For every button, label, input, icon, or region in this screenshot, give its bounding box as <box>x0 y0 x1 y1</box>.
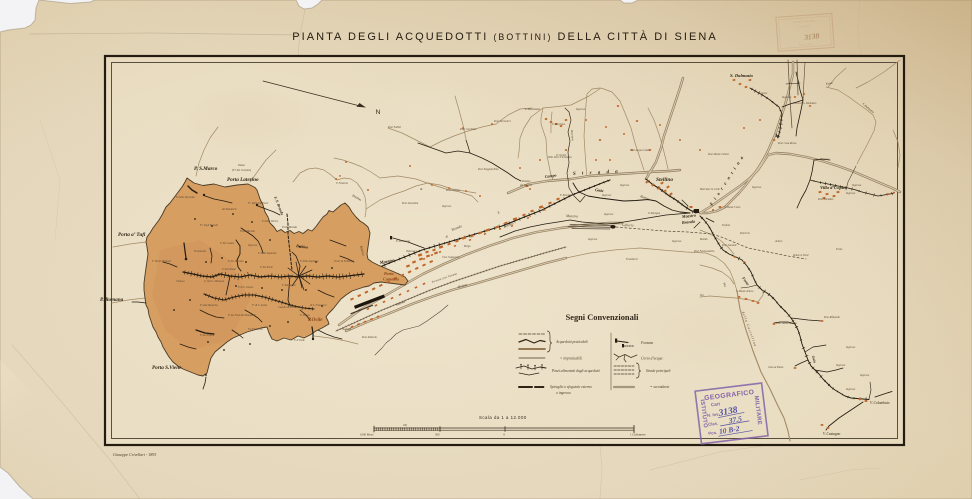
svg-text:F. della Sapienza: F. della Sapienza <box>257 252 277 255</box>
svg-text:Ingresso: Ingresso <box>247 244 258 247</box>
svg-text:Porta: Porta <box>384 271 394 276</box>
svg-text:Ingresso: Ingresso <box>603 213 614 216</box>
svg-text:F. dei Fonti del Mandorlo: F. dei Fonti del Mandorlo <box>227 314 256 317</box>
svg-text:Pod. Acqua Calda: Pod. Acqua Calda <box>629 149 650 152</box>
svg-text:Villa d’Uopini: Villa d’Uopini <box>820 185 848 190</box>
svg-text:Petriccio: Petriccio <box>739 232 751 235</box>
svg-text:G. Val G. Montone: G. Val G. Montone <box>204 280 225 283</box>
svg-text:P. S.Marco: P. S.Marco <box>194 166 218 172</box>
svg-text:Pod. Albereta: Pod. Albereta <box>361 336 377 339</box>
svg-text:Ingresso: Ingresso <box>845 388 856 391</box>
svg-text:Fonte Brenda: Fonte Brenda <box>239 230 255 233</box>
svg-text:Pod. Casa Rossa: Pod. Casa Rossa <box>777 142 797 145</box>
svg-text:Acquedotti praticabili: Acquedotti praticabili <box>555 340 588 344</box>
svg-text:Scala da 1 a 12.000: Scala da 1 a 12.000 <box>479 415 527 420</box>
svg-text:V. Castagno: V. Castagno <box>823 432 841 436</box>
svg-text:Ingresso: Ingresso <box>575 108 586 111</box>
svg-text:Curva di S. Dalmazio: Curva di S. Dalmazio <box>793 102 817 105</box>
svg-text:Spiraglio o sfogatoio esterno: Spiraglio o sfogatoio esterno <box>550 385 592 389</box>
svg-text:Fᵗᵃ delle due Porte: Fᵗᵃ delle due Porte <box>247 201 269 205</box>
svg-text:Ingresso: Ingresso <box>859 374 870 377</box>
svg-text:N: N <box>376 109 381 116</box>
svg-text:F. del Casato: F. del Casato <box>219 242 235 245</box>
svg-text:500: 500 <box>435 433 440 437</box>
svg-text:Pod. Fabbri: Pod. Fabbri <box>387 126 401 129</box>
svg-text:Pod. Cerchiaia: Pod. Cerchiaia <box>459 128 477 131</box>
svg-text:Pod. Poggiarellino: Pod. Poggiarellino <box>477 168 499 171</box>
svg-text:F. Pantaneto: F. Pantaneto <box>281 284 296 287</box>
svg-text:Corso d’acqua: Corso d’acqua <box>641 357 663 361</box>
svg-text:V. Fosteria: V. Fosteria <box>336 182 348 185</box>
svg-text:F. Nuova: F. Nuova <box>299 314 310 317</box>
svg-text:Civo Cappuccio: Civo Cappuccio <box>442 256 460 259</box>
svg-text:Ingresso: Ingresso <box>601 194 612 197</box>
svg-text:F. dell’Abate: F. dell’Abate <box>221 268 237 271</box>
svg-text:Marciano in Colle: Marciano in Colle <box>699 188 721 191</box>
svg-text:PIANTA DEGLI ACQUEDOTTI (BOTTI: PIANTA DEGLI ACQUEDOTTI (BOTTINI) DELLA … <box>292 30 718 43</box>
svg-text:Palazzo: Palazzo <box>521 180 531 183</box>
svg-text:Ingresso: Ingresso <box>819 158 830 161</box>
svg-text:Capella di Provenzano: Capella di Provenzano <box>278 306 303 309</box>
svg-text:F. Val di Montone: F. Val di Montone <box>151 260 172 263</box>
svg-text:Camollia: Camollia <box>383 277 399 282</box>
svg-text:1000 Metri: 1000 Metri <box>360 433 374 437</box>
svg-text:Ingresso: Ingresso <box>619 184 630 187</box>
svg-text:Porta Laterino: Porta Laterino <box>227 177 259 183</box>
svg-text:Ingresso: Ingresso <box>751 186 762 189</box>
svg-text:Ingresso: Ingresso <box>851 184 862 187</box>
svg-text:Fontana: Fontana <box>640 341 653 345</box>
svg-text:P.Ovile: P.Ovile <box>308 318 323 323</box>
svg-text:Diana: Diana <box>237 164 245 167</box>
svg-text:Pod. Fontecastello: Pod. Fontecastello <box>693 250 715 253</box>
svg-text:di S. Francesco: di S. Francesco <box>310 304 327 307</box>
svg-text:Borgo: Borgo <box>464 245 471 248</box>
svg-text:Maestra: Maestra <box>565 214 578 218</box>
svg-text:Fontebecci: Fontebecci <box>625 258 638 261</box>
svg-text:Pod. Rifiuardo: Pod. Rifiuardo <box>823 316 841 319</box>
svg-text:Arieno: Arieno <box>774 240 783 243</box>
svg-text:Pod. Torrenieri: Pod. Torrenieri <box>493 120 511 123</box>
svg-text:F. di Pescaia: F. di Pescaia <box>395 240 411 243</box>
svg-text:Pod. Lanzetti: Pod. Lanzetti <box>721 244 737 247</box>
svg-text:F. della Vetrice: F. della Vetrice <box>261 220 279 223</box>
svg-text:Pod. Casone: Pod. Casone <box>445 189 461 192</box>
svg-text:Ingresso: Ingresso <box>781 96 792 99</box>
svg-text:del Mandorlo: del Mandorlo <box>222 208 237 211</box>
svg-text:Chiasso: Chiasso <box>176 280 185 283</box>
svg-text:Mondo: Mondo <box>699 238 708 241</box>
svg-text:o ingresso: o ingresso <box>556 391 571 395</box>
svg-text:F. del Mercato: F. del Mercato <box>227 260 244 263</box>
svg-text:Stellino: Stellino <box>656 177 673 183</box>
svg-text:Imbocco Nord: Imbocco Nord <box>792 254 809 257</box>
svg-text:Pod. Santa Monica: Pod. Santa Monica <box>775 322 797 325</box>
svg-text:= impraticabili: = impraticabili <box>560 357 582 361</box>
svg-text:V. Colombaio: V. Colombaio <box>870 401 890 405</box>
svg-text:F. della Sapienza: F. della Sapienza <box>299 260 319 263</box>
svg-text:V. Monte Arioso: V. Monte Arioso <box>736 290 754 293</box>
svg-text:Casa al Piano: Casa al Piano <box>768 366 784 369</box>
svg-text:Ingresso: Ingresso <box>835 364 846 367</box>
svg-text:F. dei Pispini: F. dei Pispini <box>199 334 214 337</box>
svg-text:Strade principali: Strade principali <box>646 369 670 373</box>
svg-text:P. Romana: P. Romana <box>100 297 124 303</box>
svg-text:Traforo: Traforo <box>722 224 731 227</box>
svg-text:1 Chilometro: 1 Chilometro <box>630 433 646 437</box>
svg-text:V. Marciano: V. Marciano <box>524 107 540 111</box>
svg-text:Ingresso: Ingresso <box>757 92 768 95</box>
svg-text:Pozzi alimentati dagli acqu: Pozzi alimentati dagli acquedotti <box>551 369 600 373</box>
svg-text:F.a Follonica: F.a Follonica <box>247 328 263 331</box>
svg-text:V. Paragna: V. Paragna <box>648 212 661 215</box>
svg-text:V. Chrino: V. Chrino <box>556 154 567 157</box>
svg-text:Fonte di Follonica: Fonte di Follonica <box>333 260 355 263</box>
svg-text:V. Marciano: V. Marciano <box>552 123 566 126</box>
svg-text:di: di <box>420 187 423 191</box>
svg-text:Ingresso: Ingresso <box>441 205 452 208</box>
svg-text:Stazione: Stazione <box>342 328 352 331</box>
svg-text:= secondaria: = secondaria <box>650 385 669 389</box>
svg-text:Ingresso: Ingresso <box>671 240 682 243</box>
svg-text:F. del Ponte: F. del Ponte <box>259 266 274 269</box>
svg-text:F. della Spiranda: F. della Spiranda <box>175 196 195 199</box>
svg-text:Porta S.Viene: Porta S.Viene <box>152 365 182 371</box>
svg-text:Fᵒ di S. Ansile: Fᵒ di S. Ansile <box>251 304 268 307</box>
svg-text:Pos.: Pos. <box>708 430 717 436</box>
svg-text:dei Diavoli: dei Diavoli <box>520 184 532 187</box>
svg-text:(Fᵈᵒ del Carmine): (Fᵈᵒ del Carmine) <box>232 169 251 172</box>
svg-text:Fonte: Fonte <box>835 248 843 251</box>
svg-text:Pod. Sarantina: Pod. Sarantina <box>401 202 419 205</box>
svg-text:Ingresso: Ingresso <box>587 238 598 241</box>
svg-text:F. di S. Giusto: F. di S. Giusto <box>237 286 254 289</box>
svg-text:V. Monte Celso: V. Monte Celso <box>724 206 741 209</box>
svg-text:Fontanella: Fontanella <box>193 250 206 253</box>
svg-text:Porta a’ Tufi: Porta a’ Tufi <box>118 232 146 238</box>
svg-text:F. d’Ovile: F. d’Ovile <box>293 339 306 342</box>
svg-text:Giuseppe Crivellari - 1893: Giuseppe Crivellari - 1893 <box>113 452 156 457</box>
svg-text:F. Pescaia: F. Pescaia <box>559 194 572 197</box>
svg-text:Segni Convenzionali: Segni Convenzionali <box>566 313 640 322</box>
svg-text:Pod. Paradiso: Pod. Paradiso <box>817 198 834 201</box>
svg-text:Fᵗᵃ degli Eremiti: Fᵗᵃ degli Eremiti <box>199 223 218 227</box>
svg-text:S. Dalmazio: S. Dalmazio <box>730 73 754 78</box>
svg-text:F. alla Monacha: F. alla Monacha <box>199 304 218 307</box>
svg-text:Fonte Branda: Fonte Branda <box>281 226 298 229</box>
svg-text:Ingresso: Ingresso <box>845 346 856 349</box>
svg-text:Ingresso: Ingresso <box>845 192 856 195</box>
svg-text:Valacocca: Valacocca <box>406 250 418 253</box>
svg-text:Pod. Monte Cellesi: Pod. Monte Cellesi <box>707 153 729 156</box>
svg-text:Galleria: Galleria <box>622 223 634 227</box>
